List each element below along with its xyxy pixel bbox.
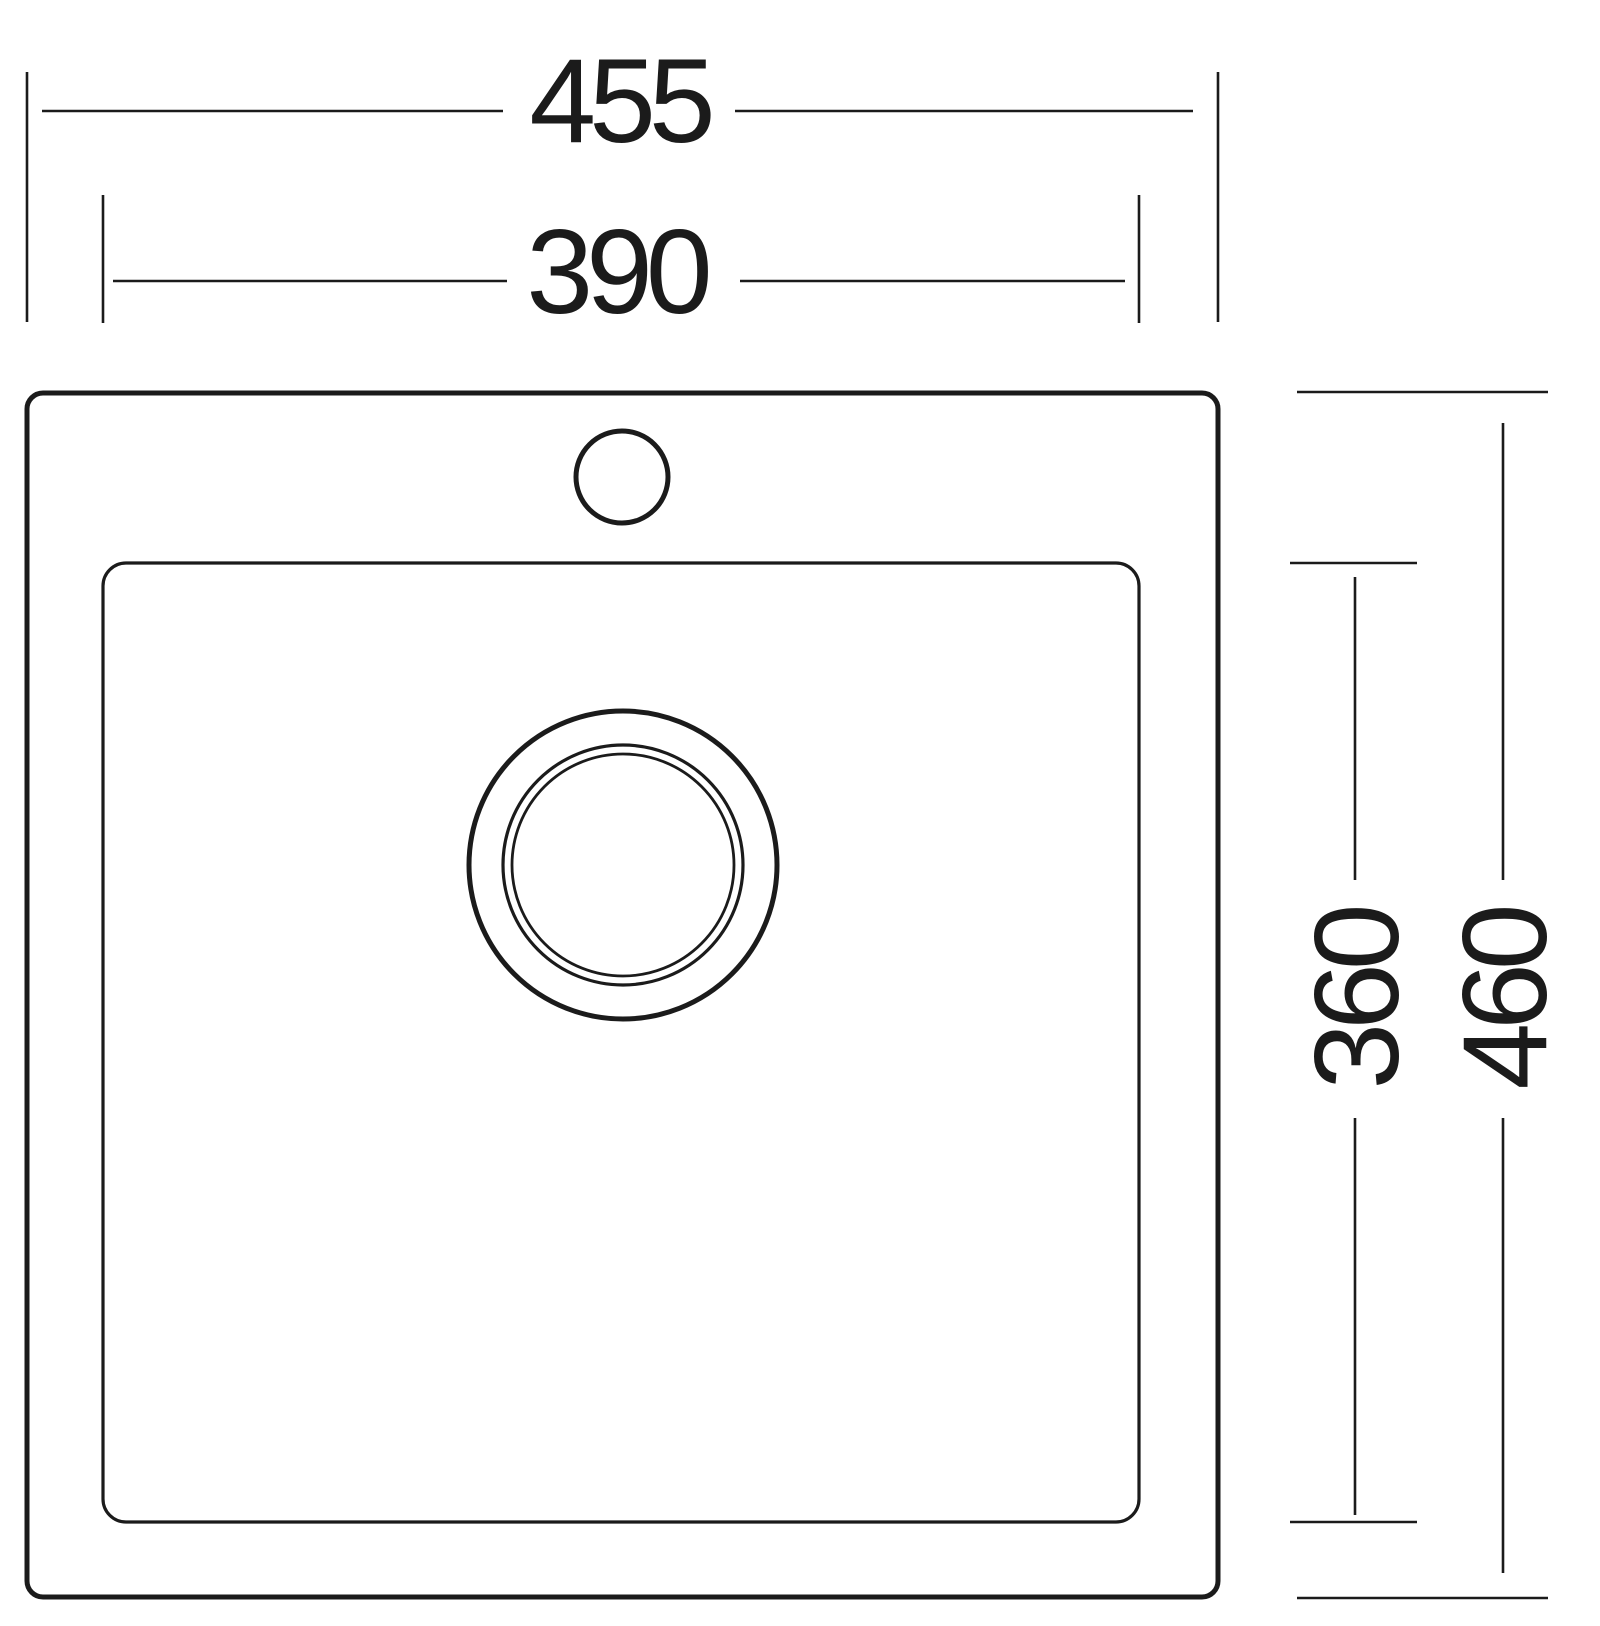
technical-drawing-canvas: 455 390 360 [0,0,1600,1626]
inner-height-dimension: 360 [1290,563,1424,1522]
drain [469,711,777,1019]
drain-inner-circle [512,754,734,976]
sink-top-view-drawing: 455 390 360 [0,0,1600,1626]
drain-middle-circle [503,745,743,985]
faucet-hole-circle [576,431,668,523]
inner-height-label: 360 [1290,907,1424,1089]
drain-outer-circle [469,711,777,1019]
inner-width-dimension: 390 [103,195,1139,339]
sink-outer-outline [27,393,1218,1597]
basin-outline [103,563,1139,1522]
sink-body [27,393,1218,1597]
overall-width-label: 455 [529,34,710,168]
overall-height-label: 460 [1438,907,1572,1089]
inner-width-label: 390 [526,205,708,339]
